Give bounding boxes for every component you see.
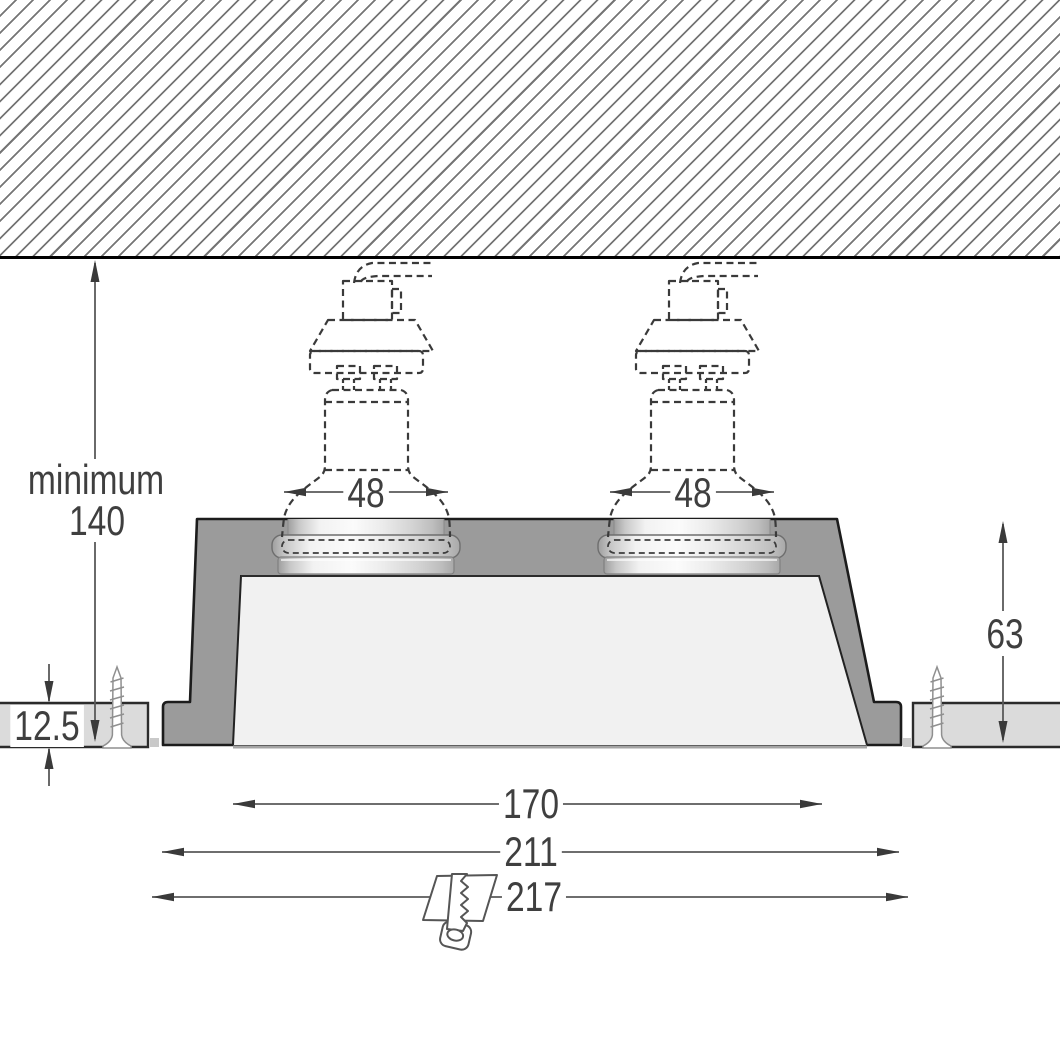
- installation-diagram: minimum 140 48 48 12.5 63 170 211 217: [0, 0, 1060, 1060]
- trim-collar-left: [272, 519, 460, 574]
- dim-label-board-thickness: 12.5: [10, 705, 83, 747]
- dim-label-recess-depth-prefix: minimum: [24, 459, 168, 501]
- saw-icon: [423, 874, 497, 951]
- dim-label-recess-depth-value: 140: [65, 500, 129, 542]
- dim-label-aperture-width: 170: [499, 783, 563, 825]
- fixture-cavity: [233, 576, 867, 745]
- dim-label-lamp-opening-right: 48: [670, 472, 715, 514]
- dim-label-body-height: 63: [982, 613, 1027, 655]
- dim-label-body-width: 211: [500, 831, 562, 873]
- ceiling-board-right: [903, 703, 1060, 747]
- trim-collar-right: [598, 519, 786, 574]
- dim-label-lamp-opening-left: 48: [343, 472, 388, 514]
- dim-label-cutout-width: 217: [502, 876, 566, 918]
